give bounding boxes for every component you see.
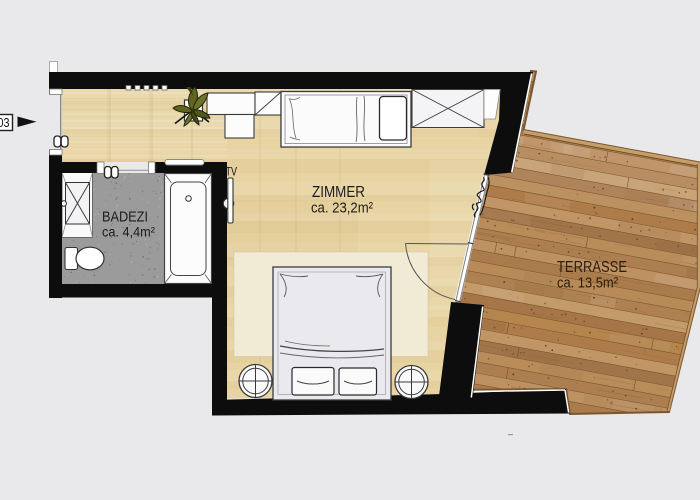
svg-text:ca. 23,2m²: ca. 23,2m² bbox=[311, 200, 373, 217]
svg-text:TERRASSE: TERRASSE bbox=[557, 259, 627, 276]
svg-text:ZIMMER: ZIMMER bbox=[312, 184, 365, 201]
svg-text:ca. 13,5m²: ca. 13,5m² bbox=[557, 275, 618, 292]
svg-text:03: 03 bbox=[0, 116, 10, 130]
svg-text:ca. 4,4m²: ca. 4,4m² bbox=[102, 224, 155, 240]
svg-text:TV: TV bbox=[226, 167, 238, 179]
